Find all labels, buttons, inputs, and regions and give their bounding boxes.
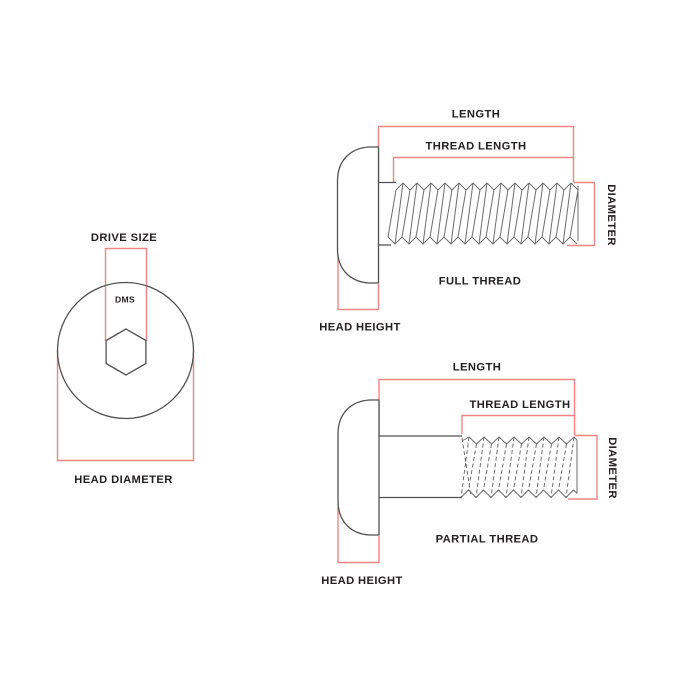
- head-diameter-label: HEAD DIAMETER: [74, 474, 172, 486]
- head-height-label: HEAD HEIGHT: [321, 575, 402, 587]
- thread-length-bracket: [462, 416, 575, 435]
- head-diameter-bracket: [58, 351, 194, 461]
- hex-socket: [106, 329, 146, 375]
- drive-size-abbrev-label: DMS: [115, 295, 135, 305]
- head-height-label: HEAD HEIGHT: [319, 322, 400, 334]
- diameter-bracket: [567, 183, 595, 246]
- shank-edges: [379, 436, 462, 498]
- full-thread-hatching: [388, 183, 578, 244]
- thread-length-bracket: [394, 158, 574, 183]
- thread-crest-top: [462, 437, 577, 444]
- full-thread-screw-drawing: [338, 147, 579, 283]
- thread-length-label: THREAD LENGTH: [426, 141, 527, 153]
- screw-dimension-diagram: DRIVE SIZE DMS HEAD DIAMETER LENGTH THRE…: [0, 0, 700, 700]
- thread-flank-lines-dashed: [461, 437, 574, 498]
- button-head-profile: [338, 400, 379, 535]
- head-top-view-figure: DRIVE SIZE DMS HEAD DIAMETER: [58, 232, 194, 486]
- partial-thread-screw-drawing: [338, 400, 577, 535]
- length-label: LENGTH: [452, 109, 500, 121]
- partial-thread-label: PARTIAL THREAD: [436, 534, 539, 546]
- partial-thread-screw-figure: LENGTH THREAD LENGTH DIAMETER PARTIAL TH…: [321, 362, 618, 588]
- thread-crest-bottom: [461, 490, 577, 498]
- thread-flank-lines: [388, 183, 578, 244]
- button-head-profile: [338, 147, 379, 283]
- full-thread-screw-figure: LENGTH THREAD LENGTH DIAMETER FULL THREA…: [319, 109, 617, 334]
- length-label: LENGTH: [453, 362, 501, 374]
- diameter-label: DIAMETER: [605, 184, 617, 246]
- diameter-label: DIAMETER: [606, 437, 618, 499]
- drive-size-label: DRIVE SIZE: [91, 232, 157, 244]
- length-bracket: [379, 127, 574, 183]
- head-top-view-brackets: [58, 249, 194, 461]
- shank-edges: [379, 183, 397, 246]
- thread-length-label: THREAD LENGTH: [470, 399, 571, 411]
- full-thread-label: FULL THREAD: [439, 276, 522, 288]
- diameter-bracket: [568, 436, 597, 500]
- partial-thread-hatching: [461, 437, 577, 498]
